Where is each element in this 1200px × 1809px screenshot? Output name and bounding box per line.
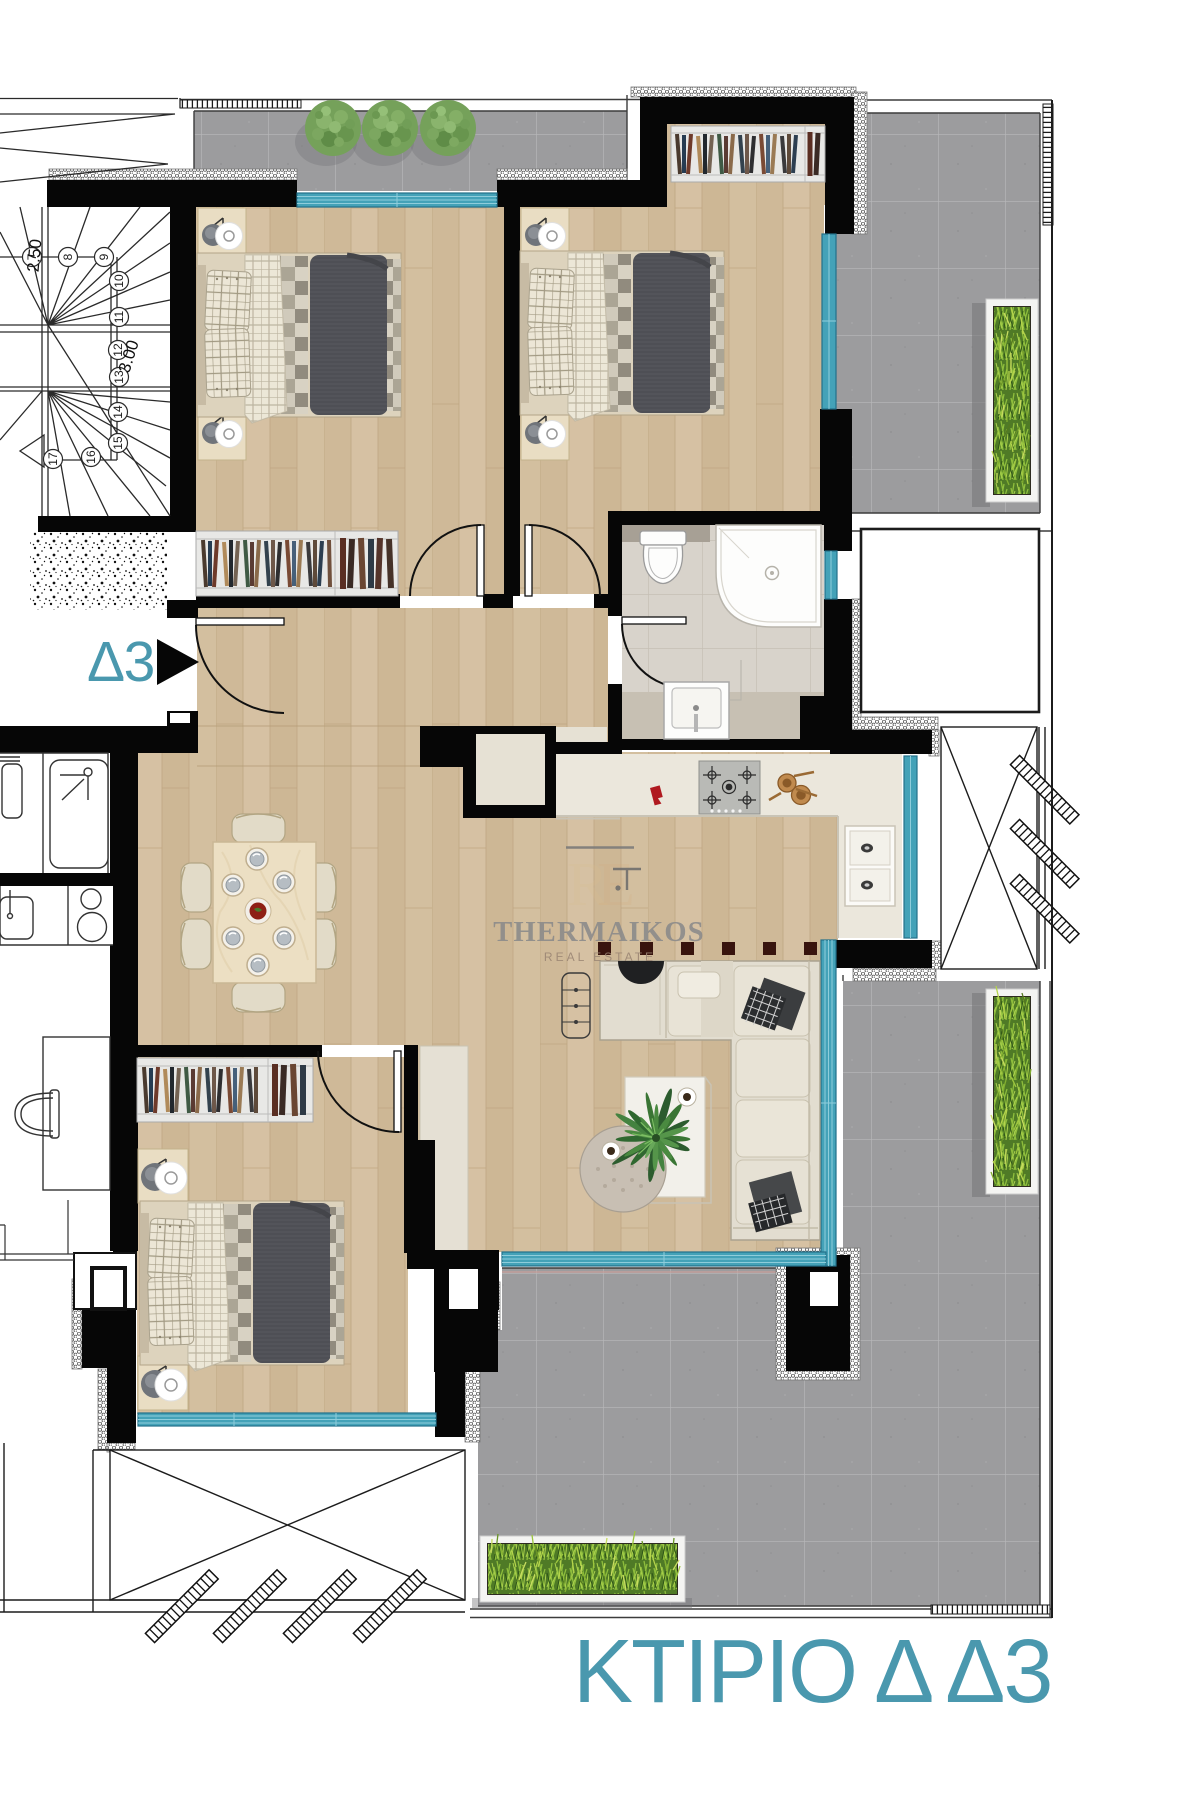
svg-text:8: 8 [61,253,75,260]
svg-text:2.50: 2.50 [24,238,46,273]
svg-text:11: 11 [112,310,126,323]
svg-text:14: 14 [111,405,125,419]
svg-text:THERMAIKOS: THERMAIKOS [493,917,705,948]
svg-text:ΚΤΙΡΙΟ Δ Δ3: ΚΤΙΡΙΟ Δ Δ3 [573,1622,1051,1722]
svg-text:15: 15 [111,436,125,450]
svg-text:E: E [597,851,635,919]
svg-text:9: 9 [97,253,111,260]
svg-text:Δ3: Δ3 [87,630,154,694]
svg-text:16: 16 [84,450,98,464]
svg-text:10: 10 [112,274,126,288]
svg-text:17: 17 [46,452,60,466]
svg-text:REAL ESTATE: REAL ESTATE [544,950,656,964]
